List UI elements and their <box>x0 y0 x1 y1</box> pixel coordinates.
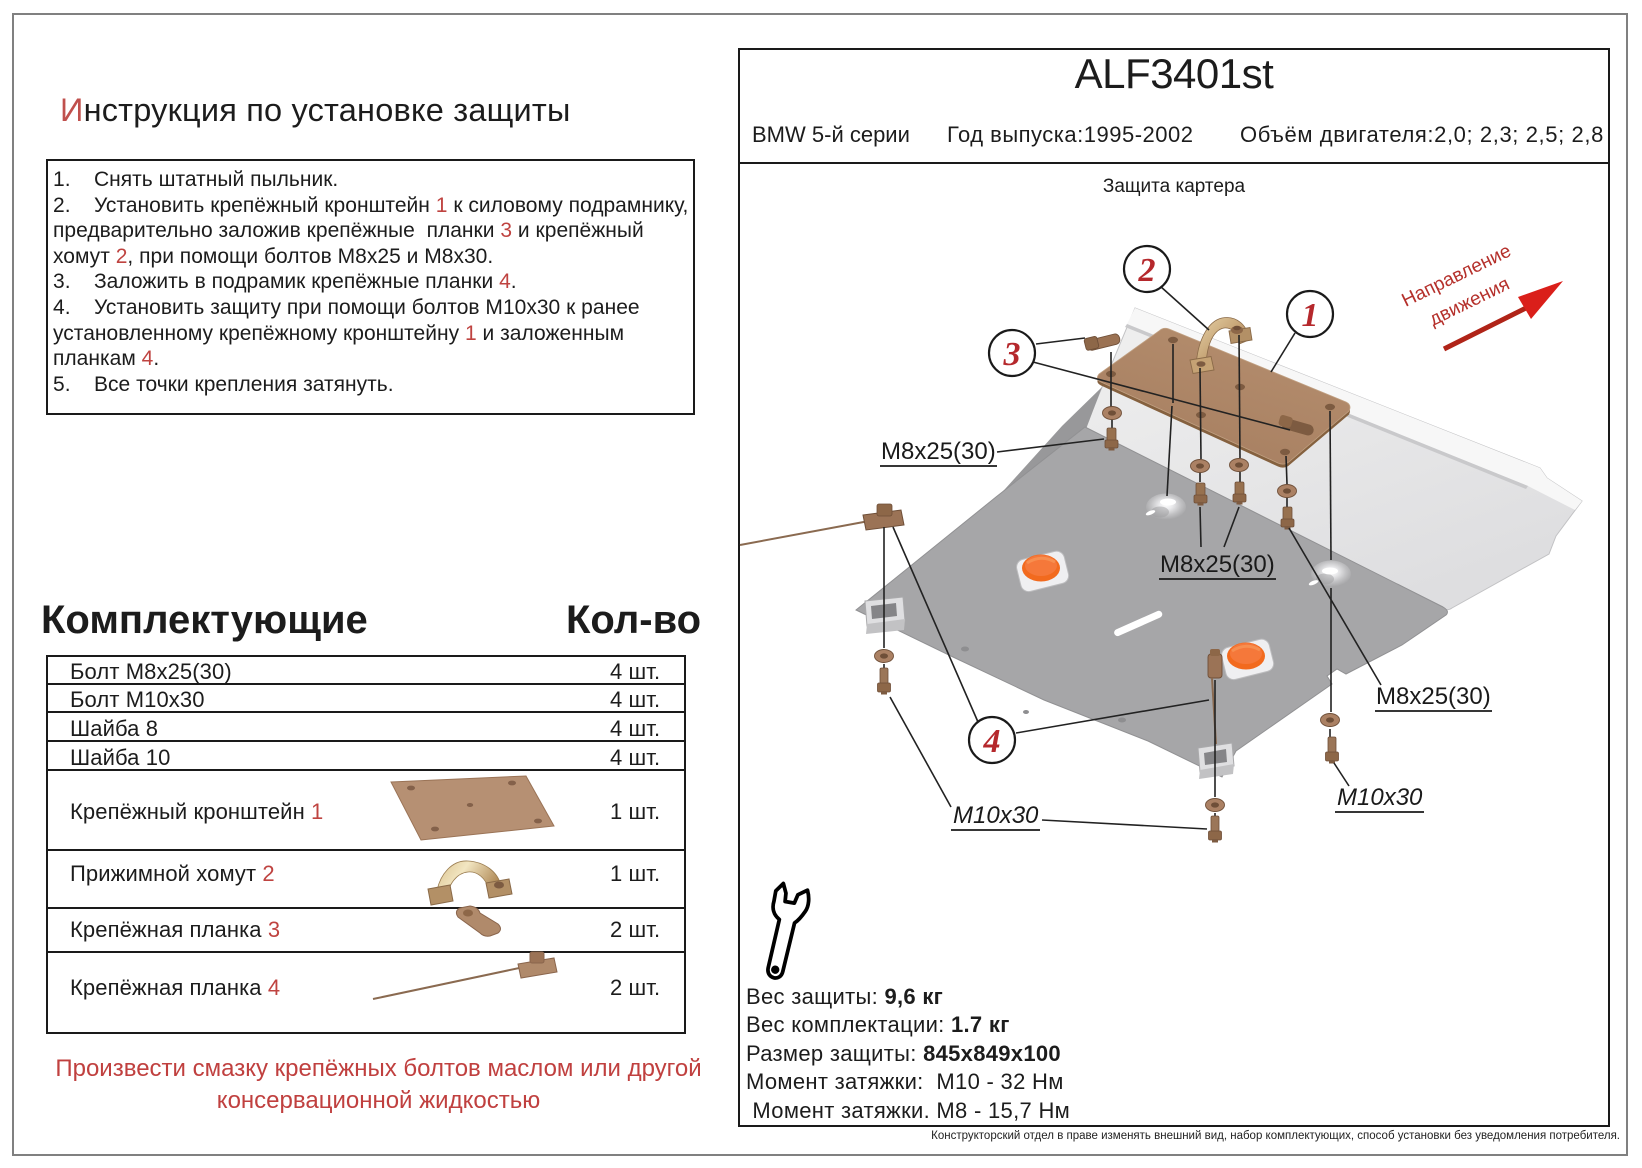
svg-text:M10x30: M10x30 <box>953 802 1039 829</box>
svg-text:3: 3 <box>1003 336 1021 373</box>
svg-text:4: 4 <box>983 723 1001 760</box>
svg-text:M10x30: M10x30 <box>1337 784 1423 811</box>
svg-text:M8x25(30): M8x25(30) <box>1160 551 1275 578</box>
svg-text:M8x25(30): M8x25(30) <box>1376 683 1491 710</box>
svg-text:2: 2 <box>1138 252 1156 289</box>
svg-text:M8x25(30): M8x25(30) <box>881 438 996 465</box>
svg-text:1: 1 <box>1302 297 1319 334</box>
